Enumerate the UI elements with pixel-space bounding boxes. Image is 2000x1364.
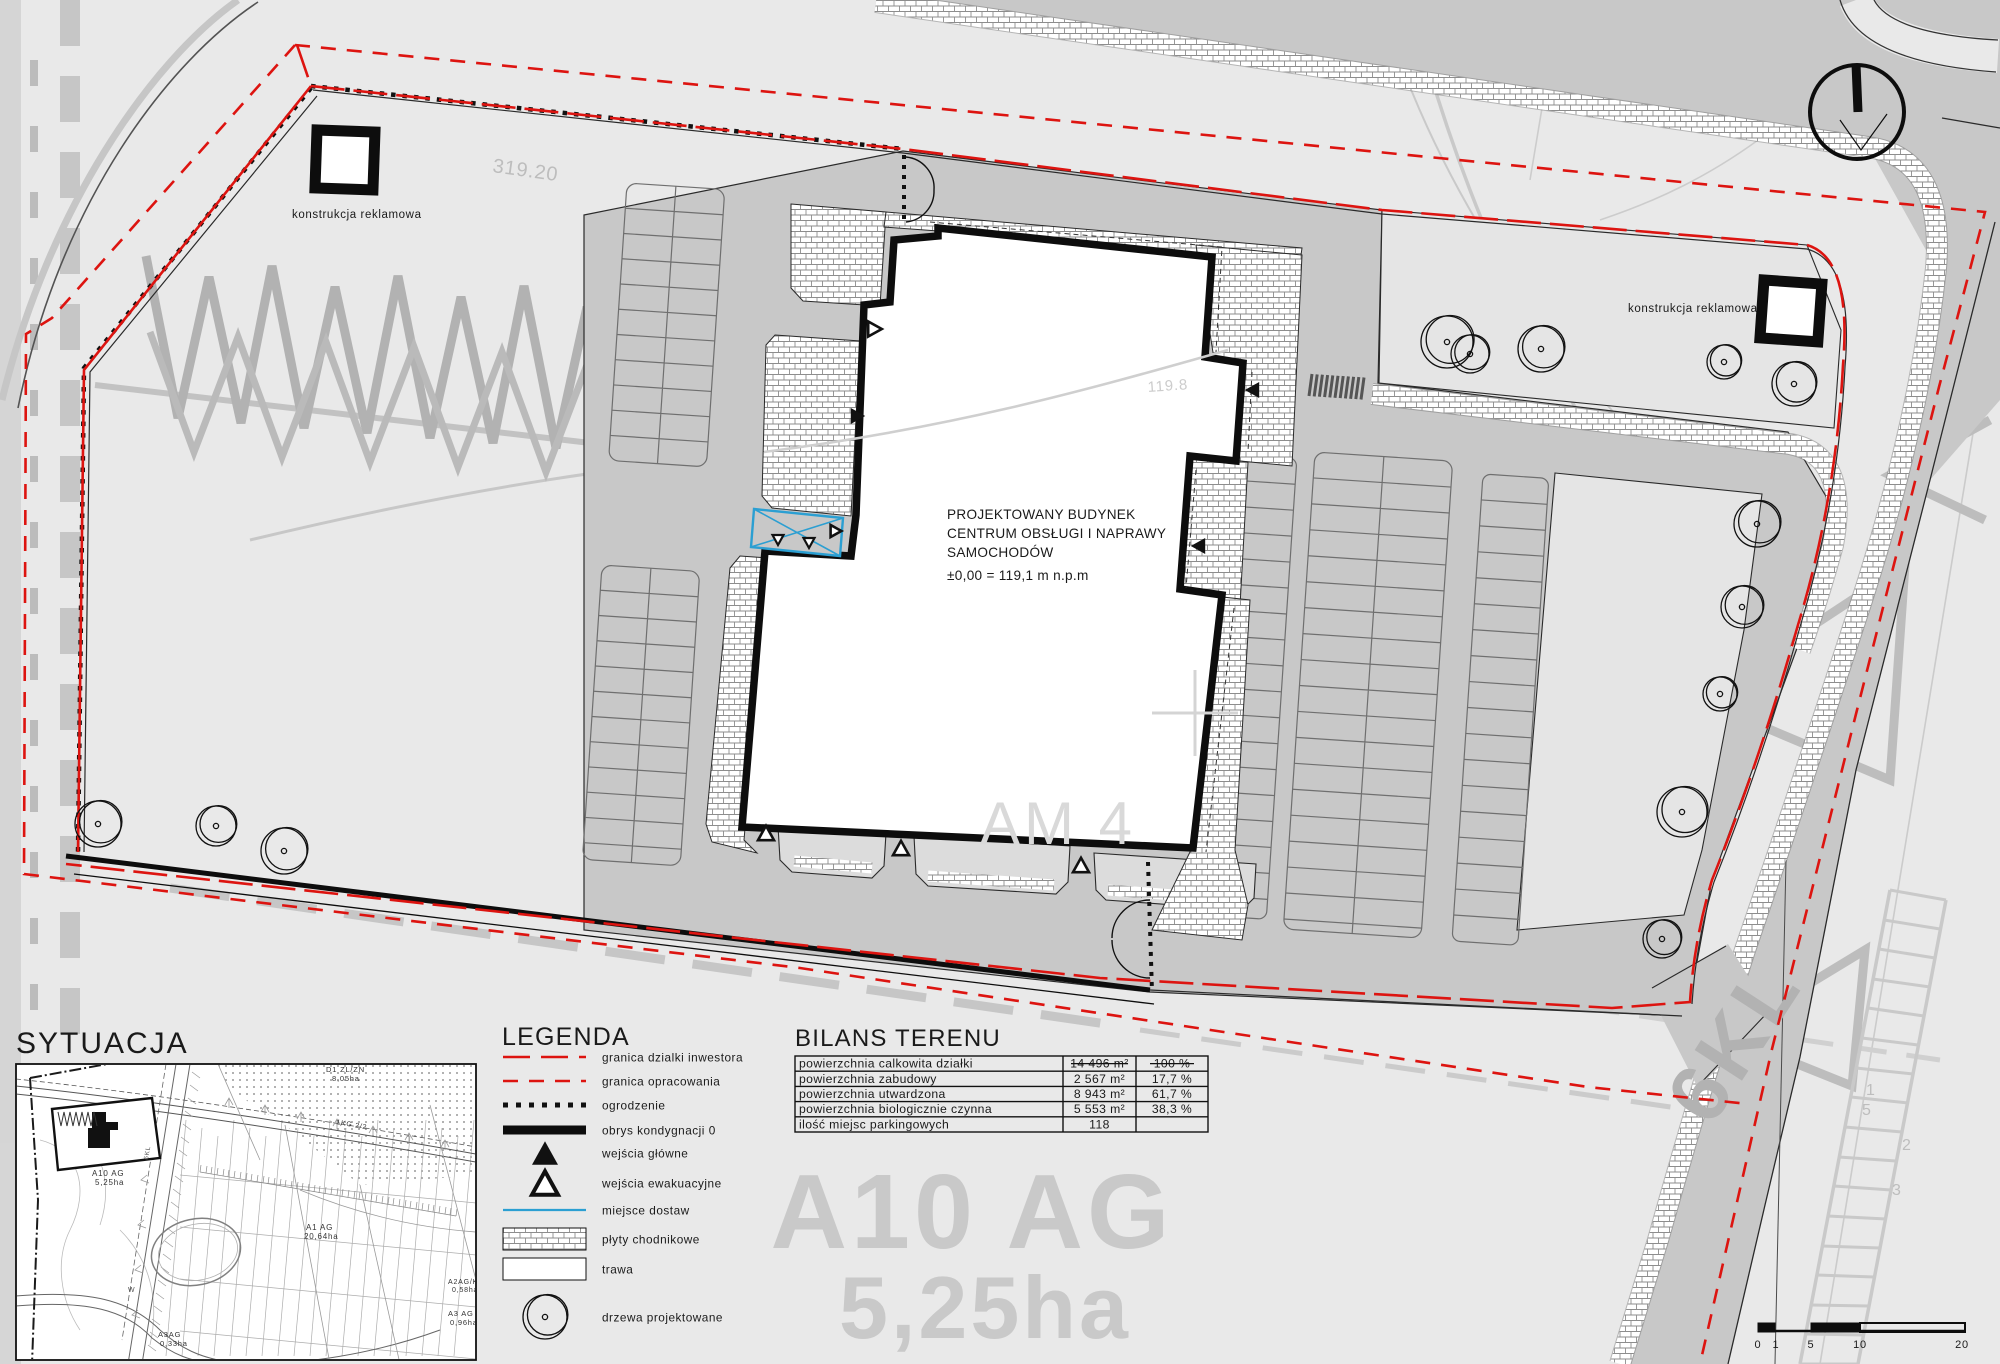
svg-text:5: 5 [1862, 1102, 1872, 1119]
svg-text:ilość miejsc parkingowych: ilość miejsc parkingowych [799, 1117, 949, 1131]
svg-text:0,58ha: 0,58ha [452, 1287, 478, 1294]
svg-text:W: W [128, 1287, 135, 1294]
svg-text:2: 2 [1902, 1137, 1912, 1154]
svg-text:płyty chodnikowe: płyty chodnikowe [602, 1233, 700, 1247]
svg-text:drzewa projektowane: drzewa projektowane [602, 1311, 723, 1325]
svg-text:20: 20 [1955, 1339, 1969, 1351]
svg-text:1: 1 [1773, 1339, 1780, 1351]
svg-text:0,96ha: 0,96ha [450, 1318, 478, 1327]
svg-text:granica dzialki inwestora: granica dzialki inwestora [602, 1051, 743, 1065]
svg-text:powierzchnia utwardzona: powierzchnia utwardzona [799, 1087, 946, 1101]
svg-text:8 943 m²: 8 943 m² [1074, 1087, 1125, 1101]
svg-text:powierzchnia calkowita dział: powierzchnia calkowita działki [799, 1057, 973, 1071]
svg-text:powierzchnia zabudowy: powierzchnia zabudowy [799, 1072, 937, 1086]
svg-text:0: 0 [1755, 1339, 1762, 1351]
svg-text:BILANS TERENU: BILANS TERENU [795, 1025, 1001, 1052]
svg-text:A1 AG: A1 AG [306, 1223, 333, 1232]
svg-text:5,25ha: 5,25ha [839, 1258, 1131, 1357]
svg-text:miejsce dostaw: miejsce dostaw [602, 1204, 690, 1218]
svg-text:118: 118 [1089, 1117, 1110, 1131]
svg-text:A3AG: A3AG [158, 1330, 181, 1339]
svg-text:2 567 m²: 2 567 m² [1074, 1072, 1125, 1086]
svg-text:AM 4: AM 4 [980, 790, 1136, 857]
svg-text:granica opracowania: granica opracowania [602, 1075, 720, 1089]
svg-text:powierzchnia biologicznie cz: powierzchnia biologicznie czynna [799, 1102, 992, 1116]
svg-text:D1 ZL/ZN: D1 ZL/ZN [326, 1065, 365, 1074]
svg-text:±0,00 = 119,1 m n.p.m: ±0,00 = 119,1 m n.p.m [947, 568, 1089, 583]
svg-text:5,25ha: 5,25ha [95, 1178, 124, 1187]
svg-text:0,33ha: 0,33ha [160, 1339, 188, 1348]
svg-text:3: 3 [1892, 1182, 1902, 1199]
svg-text:5: 5 [1808, 1339, 1815, 1351]
svg-text:CENTRUM OBSŁUGI I NAPRAWY: CENTRUM OBSŁUGI I NAPRAWY [947, 526, 1166, 541]
svg-text:A10 AG: A10 AG [771, 1153, 1174, 1271]
svg-text:trawa: trawa [602, 1263, 633, 1277]
svg-text:20,64ha: 20,64ha [304, 1232, 339, 1241]
svg-text:38,3 %: 38,3 % [1152, 1102, 1192, 1116]
svg-text:wejścia ewakuacyjne: wejścia ewakuacyjne [601, 1177, 722, 1191]
svg-text:A3 AG: A3 AG [448, 1309, 474, 1318]
svg-text:61,7 %: 61,7 % [1152, 1087, 1192, 1101]
svg-text:SAMOCHODÓW: SAMOCHODÓW [947, 545, 1053, 560]
svg-text:17,7 %: 17,7 % [1152, 1072, 1192, 1086]
svg-text:ogrodzenie: ogrodzenie [602, 1099, 665, 1113]
svg-text:konstrukcja reklamowa: konstrukcja reklamowa [1628, 303, 1758, 315]
svg-text:SYTUACJA: SYTUACJA [16, 1027, 189, 1060]
svg-text:5 553 m²: 5 553 m² [1074, 1102, 1125, 1116]
svg-text:10: 10 [1853, 1339, 1867, 1351]
svg-text:PROJEKTOWANY BUDYNEK: PROJEKTOWANY BUDYNEK [947, 507, 1136, 522]
svg-text:obrys kondygnacji 0: obrys kondygnacji 0 [602, 1124, 716, 1138]
svg-text:8,05ha: 8,05ha [332, 1074, 360, 1083]
svg-text:wejścia główne: wejścia główne [601, 1147, 688, 1161]
svg-text:1: 1 [1866, 1082, 1876, 1099]
svg-text:A10 AG: A10 AG [92, 1169, 124, 1178]
svg-text:119.8: 119.8 [1147, 376, 1189, 396]
svg-text:konstrukcja reklamowa: konstrukcja reklamowa [292, 209, 422, 221]
svg-text:LEGENDA: LEGENDA [502, 1023, 630, 1051]
